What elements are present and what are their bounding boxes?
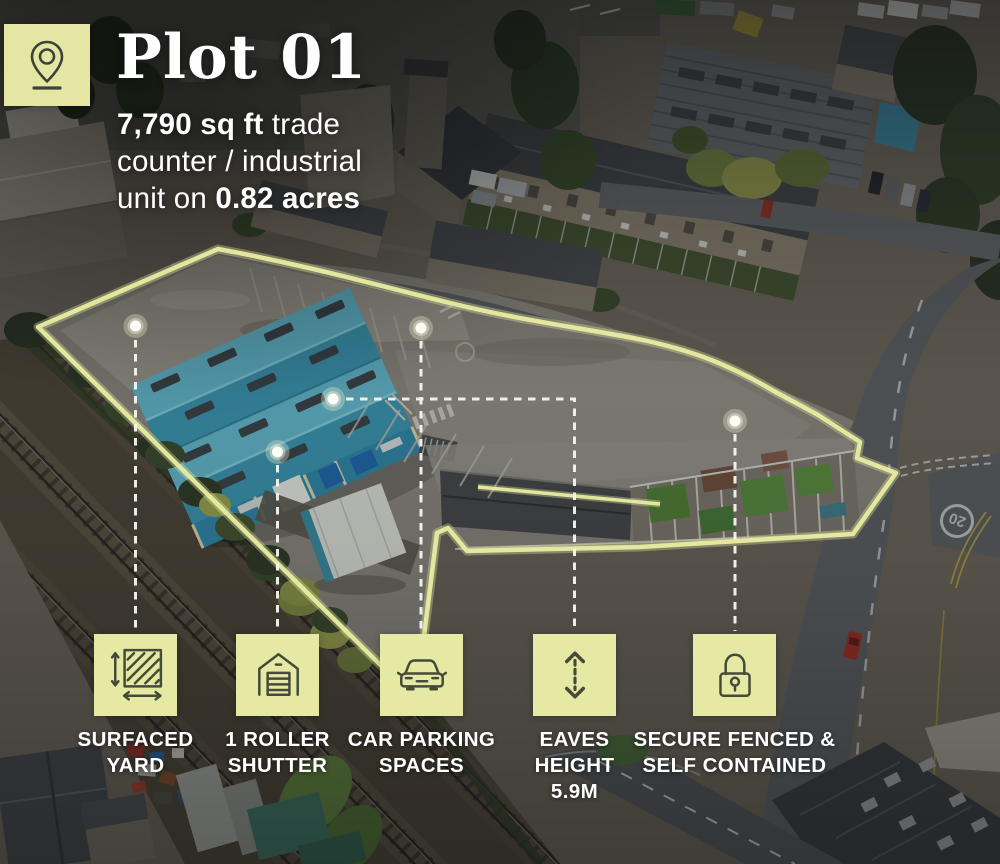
padlock-icon xyxy=(707,647,763,703)
plot-description-line: unit on 0.82 acres xyxy=(117,180,547,217)
eaves-height-icon xyxy=(547,647,603,703)
feature-label-line: 5.9M xyxy=(410,779,740,805)
leader-line-eaves-height xyxy=(346,399,575,631)
plot-description-line: 7,790 sq ft trade xyxy=(117,106,547,143)
marker-dot-secure-fenced xyxy=(723,409,747,433)
map-pin-icon xyxy=(24,38,70,92)
marker-dot-roller-shutter xyxy=(266,440,290,464)
plot-boundary-path xyxy=(38,249,896,700)
feature-tile-surfaced-yard xyxy=(94,634,177,716)
marker-dot-eaves-height xyxy=(321,387,345,411)
roller-shutter-icon xyxy=(250,647,306,703)
location-badge xyxy=(4,24,90,106)
page-title: Plot 01 xyxy=(116,26,636,90)
marker-dots xyxy=(124,314,748,464)
plot-marketing-image: 20 xyxy=(0,0,1000,864)
feature-label-line: SECURE FENCED & xyxy=(570,727,900,753)
feature-label-line: SELF CONTAINED xyxy=(570,753,900,779)
plot-description-line: counter / industrial xyxy=(117,143,547,180)
plot-description: 7,790 sq ft tradecounter / industrialuni… xyxy=(117,106,547,217)
marker-dot-car-parking xyxy=(409,316,433,340)
surfaced-yard-icon xyxy=(108,647,164,703)
car-parking-icon xyxy=(394,647,450,703)
feature-label-padlock: SECURE FENCED &SELF CONTAINED xyxy=(570,727,900,779)
plot-boundary-glow xyxy=(38,249,896,700)
boundary-inner-segment xyxy=(478,487,660,504)
marker-dot-surfaced-yard xyxy=(124,314,148,338)
feature-tile-padlock xyxy=(693,634,776,716)
feature-tile-car-parking xyxy=(380,634,463,716)
feature-tile-eaves-height xyxy=(533,634,616,716)
feature-tile-roller-shutter xyxy=(236,634,319,716)
